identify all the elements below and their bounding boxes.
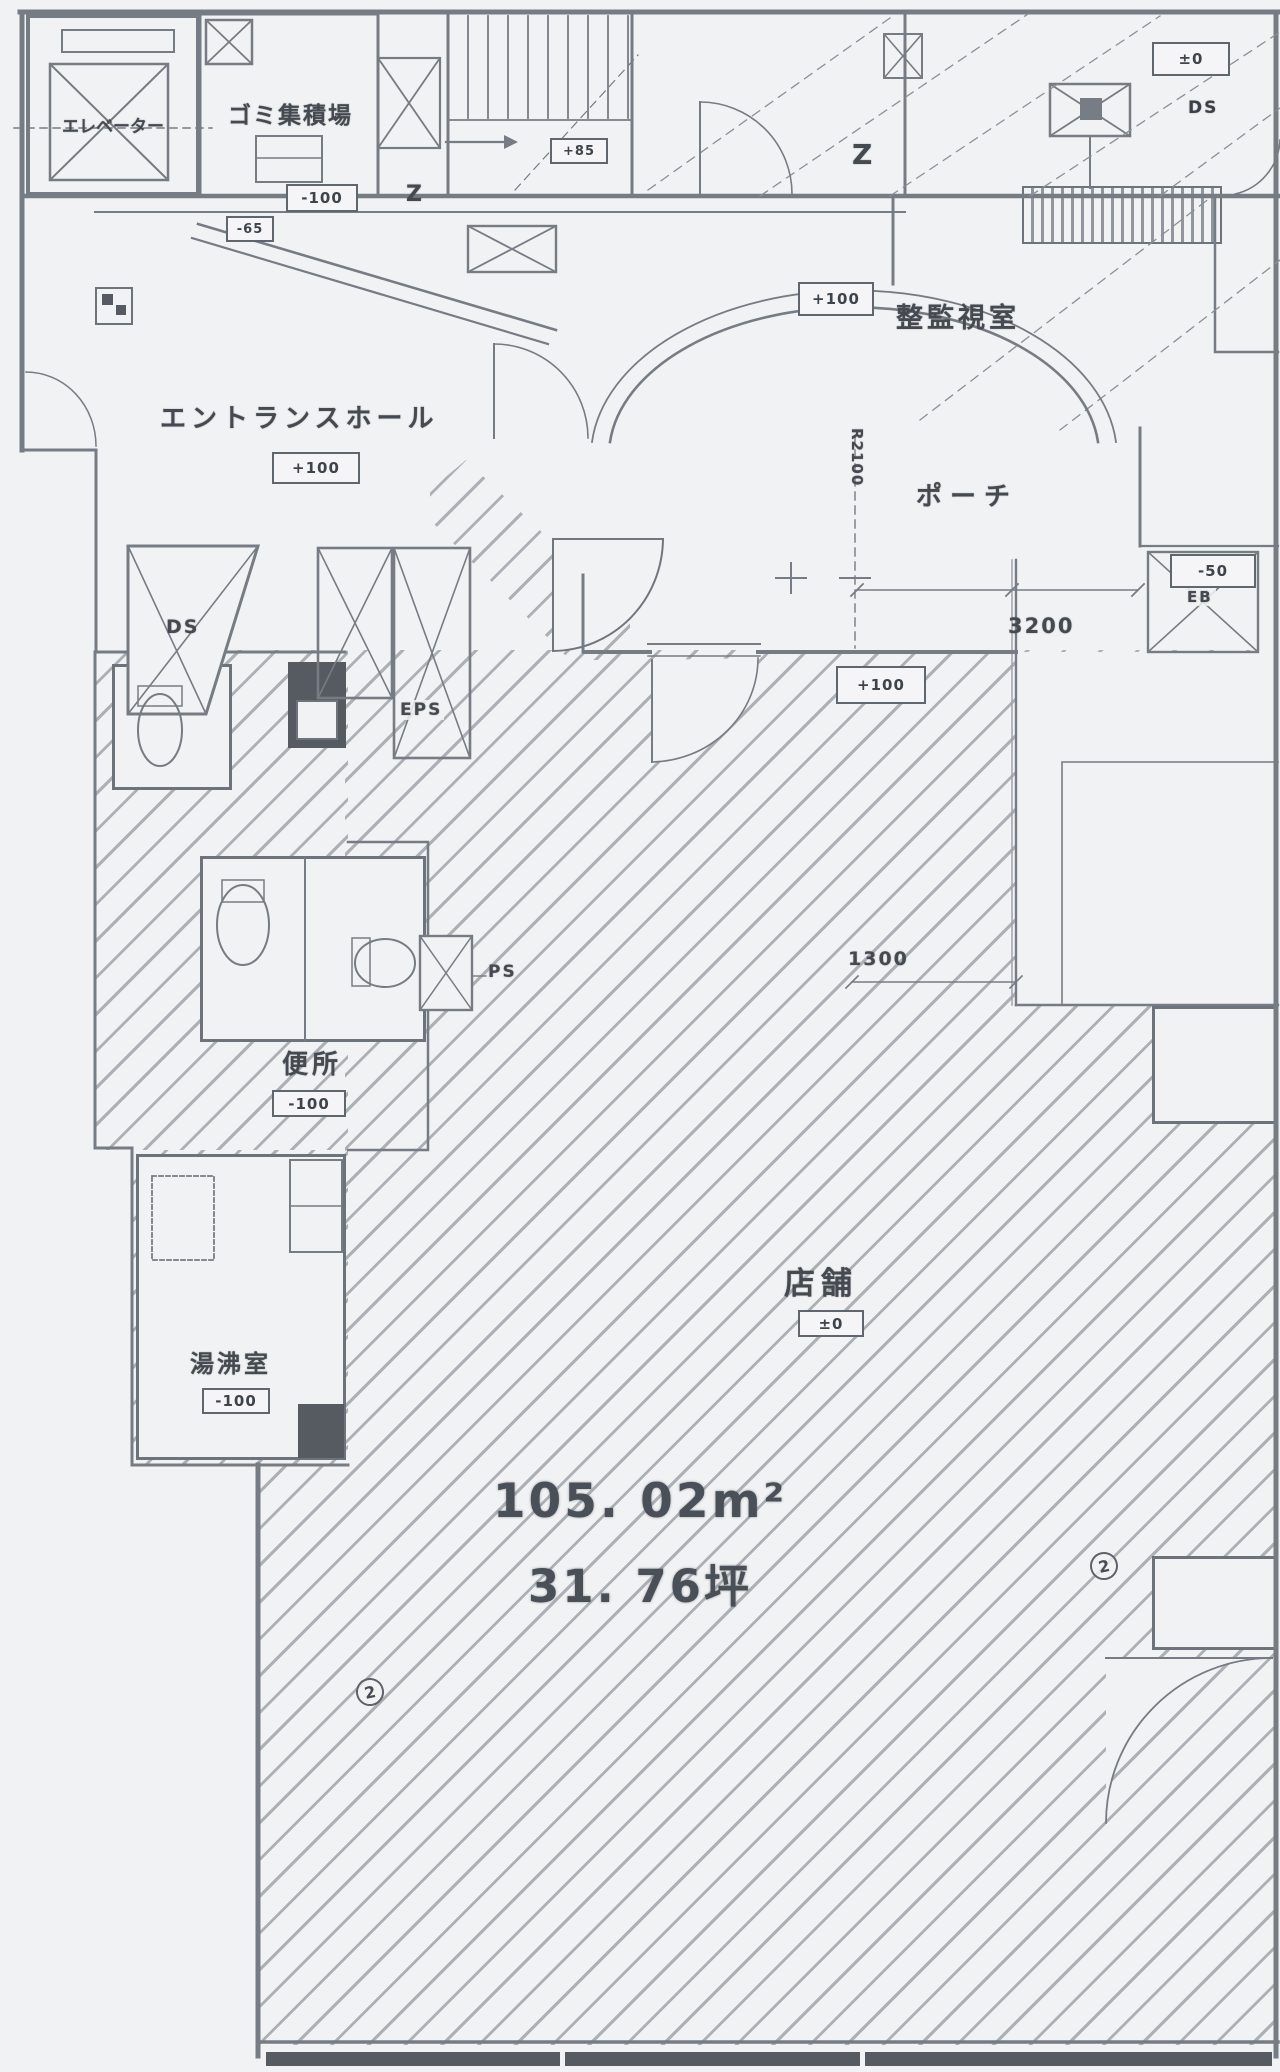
store-level-chip: ±0 [798,1310,864,1337]
corridor-level-chip: -65 [226,216,274,242]
right-width-dim: 1300 [848,948,909,970]
porch-label: ポーチ [916,476,1018,513]
labels: エレベーター ゴミ集積場 -100 -65 +85 Z Z ±0 DS +100… [0,0,1280,2072]
ds-shaft-label: DS [166,616,199,638]
hot-water-level-chip: -100 [202,1388,270,1414]
porch-width-dim: 3200 [1008,614,1074,638]
monitor-room-label: 整監視室 [896,296,1020,335]
porch-level-chip: +100 [836,666,926,704]
ps-shaft-label: PS [488,962,517,982]
z-mark-large: Z [852,138,874,171]
monitor-level-chip: +100 [798,282,874,316]
eb-label: EB [1184,588,1216,606]
ds-top-label: DS [1188,98,1218,118]
entrance-hall-label: エントランスホール [160,398,438,435]
right-side-level-chip: -50 [1170,554,1256,588]
eps-shaft-label: EPS [398,700,444,720]
porch-radius-label: R2100 [848,428,866,534]
store-area-m2: 105. 02m² [480,1474,800,1529]
store-area-tsubo: 31. 76坪 [490,1550,790,1615]
circle-mark-left: 2 [353,1675,386,1708]
garbage-label: ゴミ集積場 [228,96,353,130]
floor-plan: エレベーター ゴミ集積場 -100 -65 +85 Z Z ±0 DS +100… [0,0,1280,2072]
entrance-level-chip: +100 [272,452,360,484]
z-mark-small: Z [406,182,424,207]
toilet-label: 便所 [282,1044,342,1081]
circle-mark-right: 2 [1087,1549,1120,1582]
elevator-label: エレベーター [30,112,196,137]
store-label: 店舗 [784,1258,858,1303]
toilet-level-chip: -100 [272,1090,346,1117]
hot-water-label: 湯沸室 [190,1344,271,1379]
stair-level-chip: +85 [550,138,608,164]
garbage-level-chip: -100 [286,184,358,212]
top-right-level-chip: ±0 [1152,42,1230,76]
